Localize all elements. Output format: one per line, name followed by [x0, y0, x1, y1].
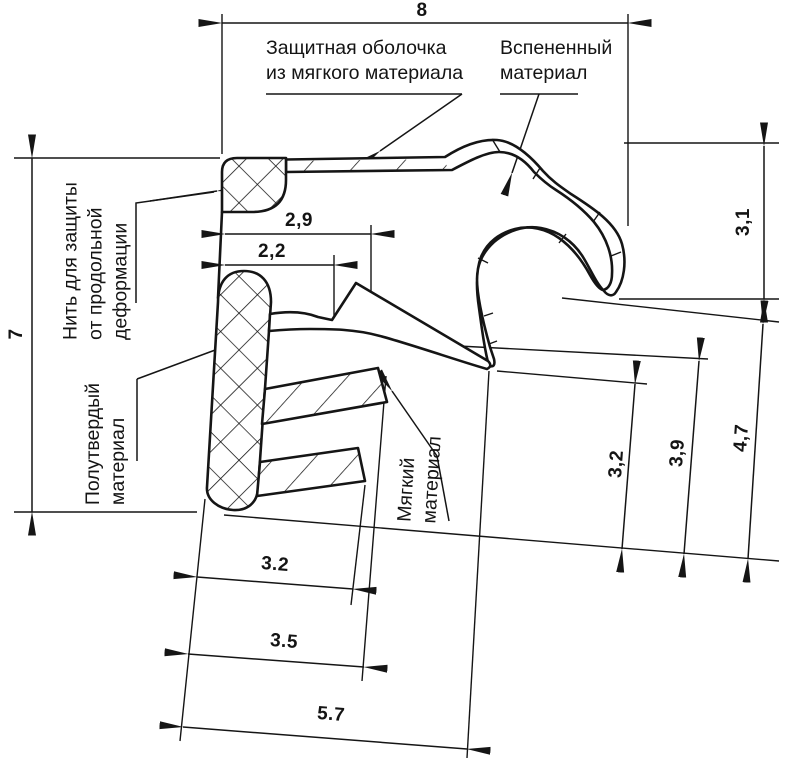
strip-hatch: [287, 159, 447, 171]
label-semi-hard-material: Полутвердый материал: [81, 383, 131, 505]
label-foamed-line2: материал: [500, 61, 612, 86]
dim-overall-width: 8: [416, 0, 427, 22]
upper-fin: [262, 368, 387, 424]
top-block: [222, 158, 286, 212]
label-thread-line2: от продольной: [84, 182, 109, 340]
label-deformation-thread: Нить для защиты от продольной деформации: [59, 182, 134, 340]
label-semi-hard-line1: Полутвердый: [81, 383, 106, 505]
label-semi-hard-line2: материал: [106, 383, 131, 505]
hook-wall-ticks: [478, 139, 621, 344]
label-thread-line3: деформации: [109, 182, 134, 340]
label-thread-line1: Нить для защиты: [59, 182, 84, 340]
label-soft-material: Мягкий материал: [392, 434, 447, 524]
label-protective-shell-line1: Защитная оболочка: [266, 36, 463, 61]
dimension-lines: [32, 23, 764, 749]
dim-top-offset-inner: 2,2: [258, 241, 286, 263]
label-foamed-line1: Вспененный: [500, 36, 612, 61]
dim-bottom-width-small: 3.2: [260, 553, 290, 577]
technical-drawing: 8 7 3,1 2,9 2,2 3,2 3,9 4,7 3.2 3.5 5.7 …: [0, 0, 790, 768]
label-protective-shell-line2: из мягкого материала: [266, 61, 463, 86]
dim-bottom-width-mid: 3.5: [269, 630, 299, 654]
dim-hook-height: 3,1: [733, 208, 755, 236]
middle-arm: [269, 283, 490, 369]
dim-right-height-mid: 3,9: [666, 438, 690, 467]
dim-right-height-small: 3,2: [605, 449, 629, 478]
dim-top-offset-outer: 2,9: [285, 210, 313, 232]
label-protective-shell: Защитная оболочка из мягкого материала: [266, 36, 463, 86]
dim-right-height-large: 4,7: [730, 423, 754, 452]
shell-and-hook-outline: [286, 140, 624, 366]
label-foamed-material: Вспененный материал: [500, 36, 612, 86]
dim-bottom-width-large: 5.7: [316, 703, 346, 727]
label-soft-line2: материал: [417, 435, 447, 524]
dim-overall-height: 7: [6, 328, 28, 339]
lower-fin: [257, 448, 365, 496]
